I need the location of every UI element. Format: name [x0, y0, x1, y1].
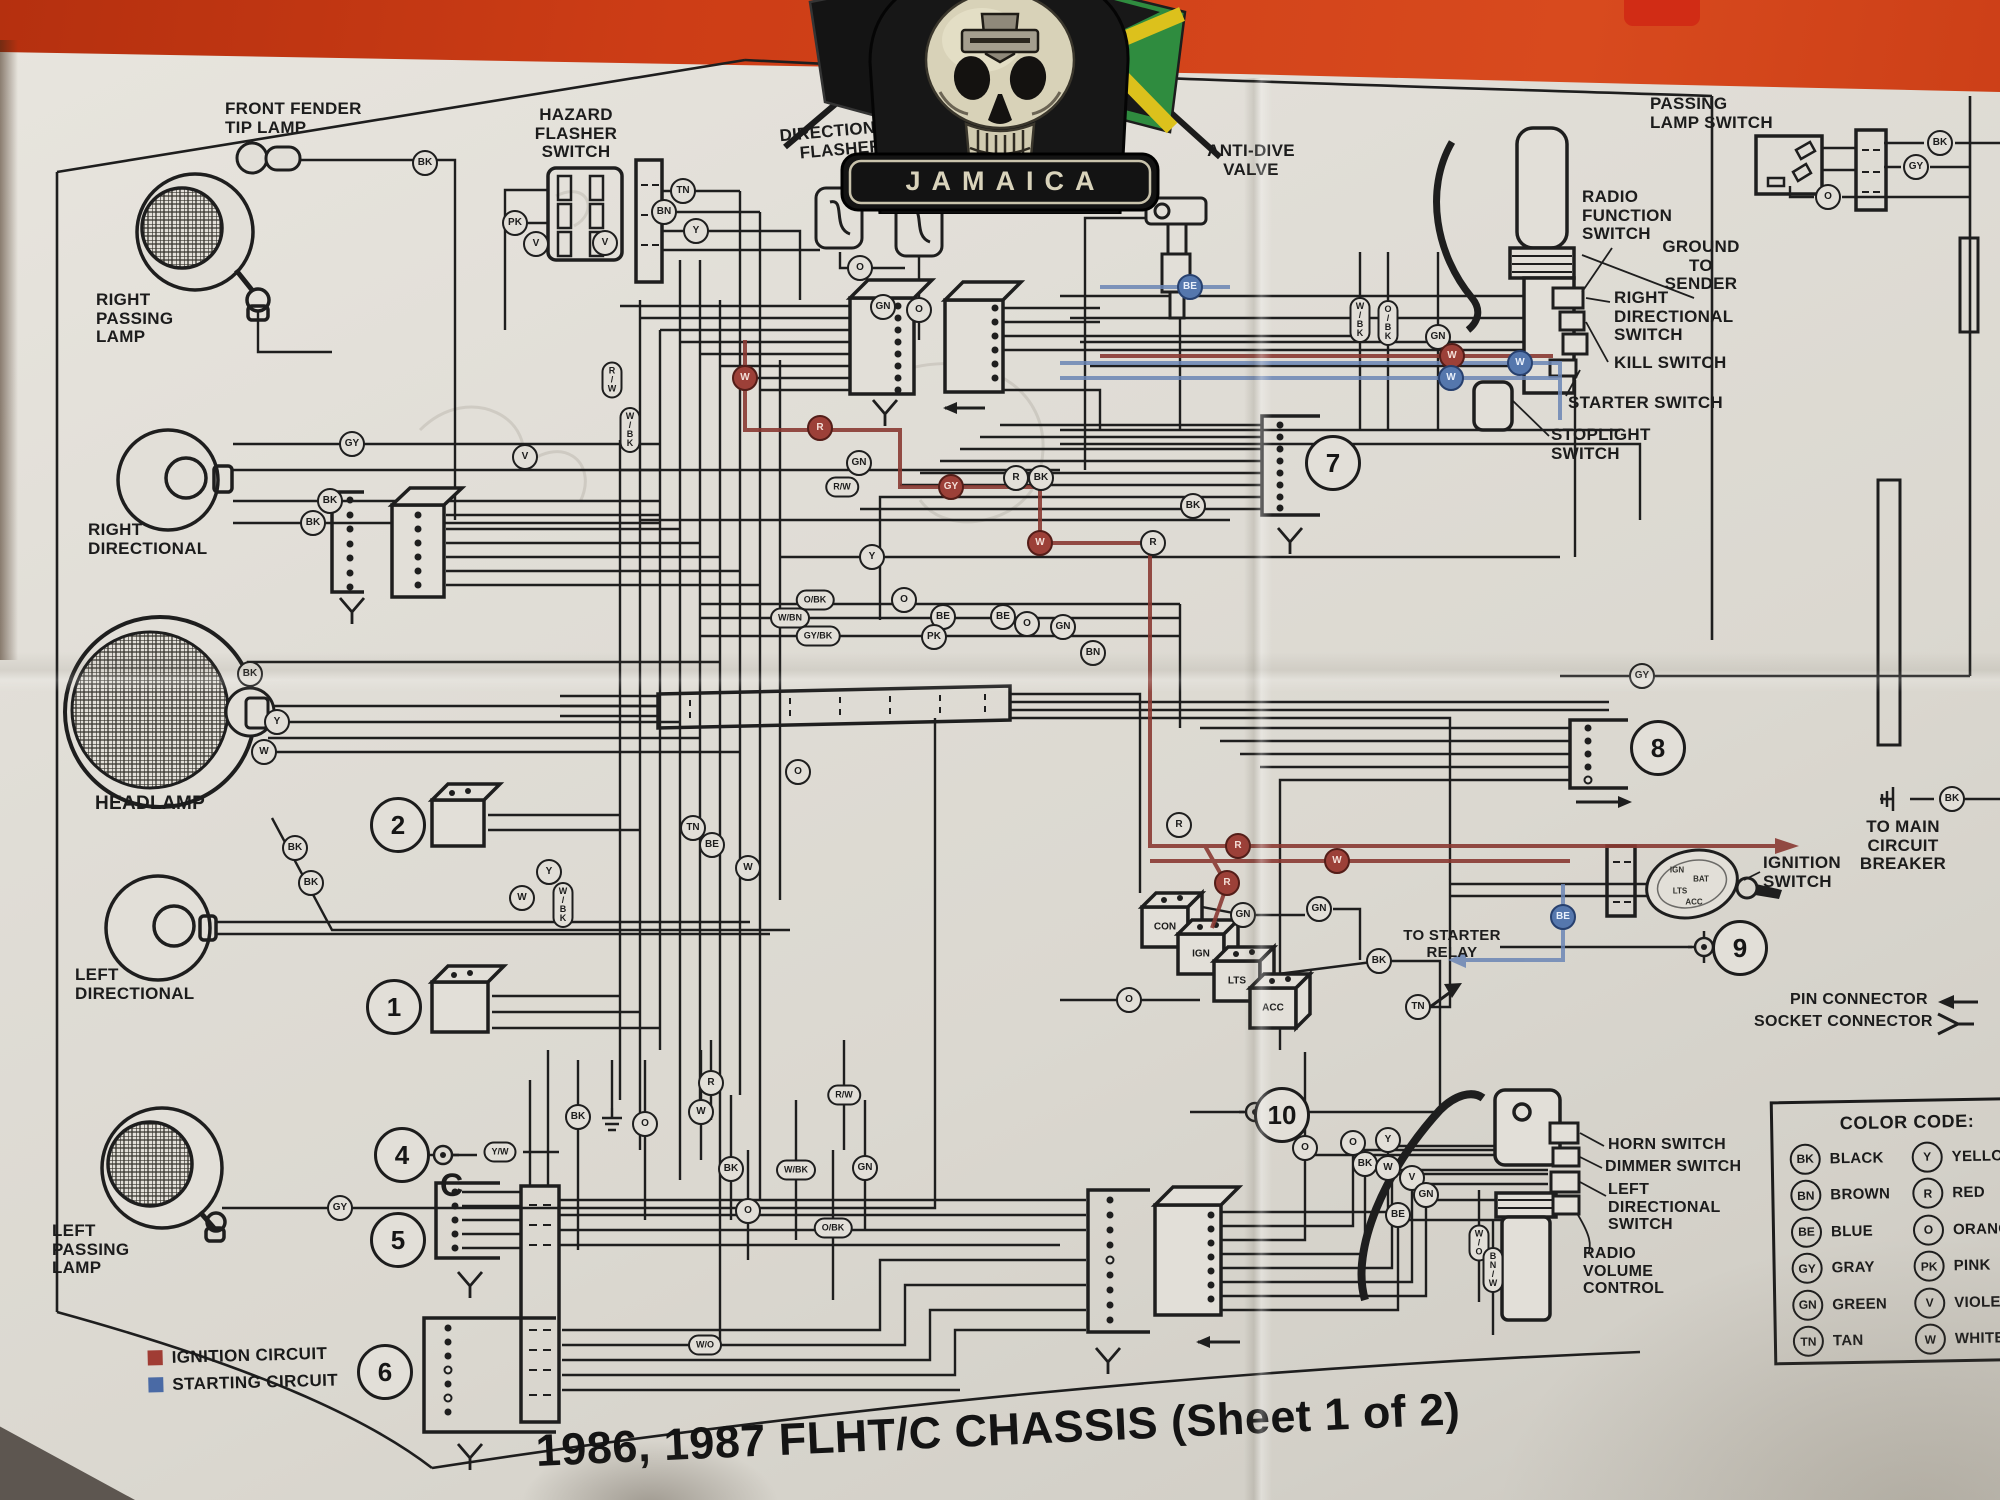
headlamp-label: HEADLAMP — [95, 794, 205, 815]
wire-label-wbk: W/BK — [776, 1160, 816, 1181]
wire-label-gn: GN — [846, 450, 872, 476]
wire-label-r: R — [1003, 465, 1029, 491]
ignition-terminal-lts: LTS — [1673, 887, 1688, 896]
wire-label-gn: GN — [1050, 614, 1076, 640]
wire-label-bk: BK — [298, 870, 324, 896]
wire-label-o: O — [1815, 184, 1841, 210]
wire-label-o: O — [847, 255, 873, 281]
circled-connector-number-1: 1 — [366, 979, 422, 1035]
color-code-name: GRAY — [1831, 1259, 1874, 1277]
color-code-name: ORANGE — [1953, 1220, 2000, 1238]
color-code-abbr: BE — [1791, 1216, 1823, 1248]
color-code-row: VVIOLET — [1914, 1283, 2000, 1322]
legend-item: STARTING CIRCUIT — [148, 1367, 338, 1399]
color-code-row: GNGREEN — [1792, 1285, 1915, 1324]
wire-label-tn: TN — [670, 178, 696, 204]
color-code-row: GYGRAY — [1791, 1248, 1914, 1287]
key-switch-cubes — [1142, 893, 1310, 1028]
wire-label-v: V — [592, 230, 618, 256]
wire-label-w: W — [732, 365, 758, 391]
wire-label-o: O — [891, 587, 917, 613]
color-code-abbr: Y — [1911, 1141, 1943, 1173]
color-code-right-column: YYELLOWRREDOORANGEPKPINKVVIOLETWWHITE — [1911, 1137, 2000, 1358]
wire-label-bk: BK — [1352, 1151, 1378, 1177]
color-code-abbr: PK — [1913, 1251, 1945, 1283]
color-code-row: BNBROWN — [1790, 1175, 1913, 1214]
color-code-name: TAN — [1833, 1332, 1864, 1350]
wire-label-bk: BK — [565, 1104, 591, 1130]
circled-connector-number-10: 10 — [1254, 1087, 1310, 1143]
wire-label-tn: TN — [1405, 994, 1431, 1020]
wire-label-bk: BK — [1927, 130, 1953, 156]
circled-connector-number-9: 9 — [1712, 920, 1768, 976]
color-code-abbr: BN — [1790, 1180, 1822, 1212]
legend-label: STARTING CIRCUIT — [172, 1370, 338, 1394]
color-code-row: BEBLUE — [1791, 1212, 1914, 1251]
color-code-name: RED — [1952, 1184, 1985, 1202]
socket-connector-label: SOCKET CONNECTOR — [1754, 1013, 1933, 1031]
color-code-title: COLOR CODE: — [1773, 1110, 2000, 1136]
lamp-bus-connectors — [332, 488, 462, 597]
dimmer-switch-label: DIMMER SWITCH — [1605, 1158, 1741, 1176]
ignition-terminal-ign: IGN — [1670, 866, 1684, 875]
to-starter-relay-label: TO STARTER RELAY — [1403, 928, 1500, 961]
radio-volume-control-label: RADIO VOLUME CONTROL — [1583, 1245, 1664, 1298]
wire-label-w: W — [251, 739, 277, 765]
circled-connector-number-5: 5 — [370, 1212, 426, 1268]
connector-1-cube — [432, 966, 660, 1032]
color-code-left-column: BKBLACKBNBROWNBEBLUEGYGRAYGNGREENTNTAN — [1789, 1139, 1915, 1360]
wire-label-gn: GN — [1306, 896, 1332, 922]
left-passing-lamp-label: LEFT PASSING LAMP — [52, 1222, 129, 1278]
wire-label-w: W — [688, 1099, 714, 1125]
color-code-row: YYELLOW — [1911, 1137, 2000, 1176]
color-code-abbr: GY — [1791, 1253, 1823, 1285]
wire-label-wbk: W / B K — [620, 407, 641, 453]
wire-label-be: BE — [1385, 1202, 1411, 1228]
patch-banner-text: JAMAICA — [842, 166, 1158, 197]
color-code-row: BKBLACK — [1789, 1139, 1912, 1178]
ignition-terminal-acc: ACC — [1685, 898, 1702, 907]
legend-swatch — [147, 1350, 162, 1365]
color-code-abbr: O — [1913, 1214, 1945, 1246]
color-code-name: GREEN — [1832, 1295, 1887, 1313]
wire-label-rw: R / W — [602, 362, 623, 399]
circled-connector-number-4: 4 — [374, 1127, 430, 1183]
wire-label-rw: R/W — [825, 477, 859, 498]
hazard-flasher-switch-label: HAZARD FLASHER SWITCH — [535, 106, 617, 162]
ignition-switch-label: IGNITION SWITCH — [1763, 854, 1841, 891]
starter-relay-arrow — [1430, 983, 1462, 1007]
anti-dive-valve-drawing — [1146, 198, 1206, 318]
wire-label-o: O — [1116, 987, 1142, 1013]
wire-label-y: Y — [536, 859, 562, 885]
wire-label-be: BE — [699, 832, 725, 858]
color-code-row: TNTAN — [1793, 1321, 1916, 1360]
right-directional-drawing — [118, 430, 232, 530]
wire-label-w: W — [1027, 530, 1053, 556]
circuit-legend: IGNITION CIRCUITSTARTING CIRCUIT — [147, 1340, 338, 1399]
pin-connector-label: PIN CONNECTOR — [1790, 991, 1928, 1009]
wire-label-obk: O/BK — [814, 1218, 853, 1239]
wire-label-bk: BK — [317, 488, 343, 514]
wiring-artwork — [0, 0, 2000, 1500]
wire-label-w: W — [1507, 350, 1533, 376]
wire-label-w: W — [735, 855, 761, 881]
wire-label-gybk: GY/BK — [796, 626, 841, 647]
wire-label-o: O — [632, 1111, 658, 1137]
key-switch-terminal-ign: IGN — [1192, 949, 1210, 960]
color-code-name: BLUE — [1831, 1222, 1873, 1240]
connector-6 — [424, 1318, 556, 1432]
kill-switch-label: KILL SWITCH — [1614, 354, 1727, 373]
circled-connector-number-6: 6 — [357, 1344, 413, 1400]
color-code-row: PKPINK — [1913, 1246, 2000, 1285]
wire-label-gy: GY — [1903, 154, 1929, 180]
ignition-terminal-bat: BAT — [1693, 875, 1709, 884]
wire-label-yw: Y/W — [484, 1142, 517, 1163]
color-code-row: WWHITE — [1915, 1319, 2000, 1358]
wire-label-wo: W/O — [688, 1335, 722, 1356]
wire-label-y: Y — [859, 544, 885, 570]
wire-label-wbk: W / B K — [553, 882, 574, 928]
wire-label-bk: BK — [412, 150, 438, 176]
legend-swatch — [148, 1377, 163, 1392]
wire-label-y: Y — [1375, 1127, 1401, 1153]
wire-label-bk: BK — [1180, 493, 1206, 519]
wire-label-gn: GN — [1230, 902, 1256, 928]
circled-connector-number-7: 7 — [1305, 435, 1361, 491]
center-connector-bar — [658, 686, 1010, 728]
ignition-switch-drawing — [1639, 841, 1782, 927]
key-switch-terminal-lts: LTS — [1228, 976, 1246, 987]
wire-label-gy: GY — [938, 474, 964, 500]
right-passing-lamp-label: RIGHT PASSING LAMP — [96, 291, 173, 347]
wire-label-bk: BK — [282, 835, 308, 861]
right-directional-label: RIGHT DIRECTIONAL — [88, 521, 207, 558]
wire-label-pk: PK — [921, 624, 947, 650]
wire-label-gy: GY — [339, 431, 365, 457]
wire-label-v: V — [512, 444, 538, 470]
color-code-name: WHITE — [1955, 1330, 2000, 1348]
wire-label-bn: BN — [651, 199, 677, 225]
wire-label-w: W — [509, 885, 535, 911]
wire-label-obk: O / B K — [1378, 300, 1399, 346]
color-code-box: COLOR CODE: BKBLACKBNBROWNBEBLUEGYGRAYGN… — [1770, 1097, 2000, 1366]
wire-label-bk: BK — [237, 661, 263, 687]
left-directional-label: LEFT DIRECTIONAL — [75, 966, 194, 1003]
wire-label-o: O — [785, 759, 811, 785]
headlamp-drawing — [65, 617, 274, 807]
circled-connector-number-8: 8 — [1630, 720, 1686, 776]
wire-label-r: R — [1140, 530, 1166, 556]
right-side-bars — [1878, 238, 1978, 745]
to-main-circuit-breaker-label: TO MAIN CIRCUIT BREAKER — [1855, 818, 1952, 874]
color-code-abbr: TN — [1793, 1326, 1825, 1358]
wire-label-bk: BK — [1028, 465, 1054, 491]
stoplight-switch-label: STOPLIGHT SWITCH — [1551, 426, 1651, 463]
pin-connector-symbol — [1938, 995, 1978, 1009]
starter-switch-label: STARTER SWITCH — [1568, 394, 1723, 413]
legend-label: IGNITION CIRCUIT — [171, 1343, 327, 1367]
wire-label-o: O — [906, 297, 932, 323]
wire-label-be: BE — [1550, 904, 1576, 930]
color-code-abbr: W — [1915, 1324, 1947, 1356]
wire-label-v: V — [523, 231, 549, 257]
color-code-name: BROWN — [1830, 1186, 1890, 1204]
wire-label-gn: GN — [852, 1155, 878, 1181]
color-code-row: OORANGE — [1913, 1210, 2000, 1249]
c-marker: C — [440, 1168, 463, 1203]
wire-label-bk: BK — [1366, 948, 1392, 974]
front-fender-tip-lamp-label: FRONT FENDER TIP LAMP — [225, 100, 362, 137]
horn-switch-label: HORN SWITCH — [1608, 1136, 1726, 1154]
wire-label-bk: BK — [718, 1156, 744, 1182]
color-code-name: VIOLET — [1954, 1293, 2000, 1311]
wire-label-wbk: W / B K — [1350, 297, 1371, 343]
color-code-row: RRED — [1912, 1173, 2000, 1212]
circled-connector-number-2: 2 — [370, 797, 426, 853]
photo-of-wiring-diagram: FRONT FENDER TIP LAMPHAZARD FLASHER SWIT… — [0, 0, 2000, 1500]
wire-label-bk: BK — [1939, 786, 1965, 812]
color-code-abbr: V — [1914, 1287, 1946, 1319]
wire-label-y: Y — [683, 218, 709, 244]
color-code-name: YELLOW — [1952, 1147, 2000, 1165]
hazard-flasher-switch-drawing — [548, 160, 662, 282]
key-switch-terminal-con: CON — [1154, 922, 1176, 933]
wire-label-be: BE — [1177, 274, 1203, 300]
wire-label-gy: GY — [327, 1195, 353, 1221]
wire-label-r: R — [1166, 812, 1192, 838]
wire-label-w: W — [1375, 1155, 1401, 1181]
wire-label-r: R — [698, 1070, 724, 1096]
wire-label-o: O — [735, 1198, 761, 1224]
wire-label-o: O — [1014, 611, 1040, 637]
wire-label-w: W — [1438, 365, 1464, 391]
color-code-name: BLACK — [1830, 1149, 1884, 1167]
color-code-abbr: GN — [1792, 1289, 1824, 1321]
wire-label-rw: R/W — [827, 1085, 861, 1106]
bottom-connector-strip — [521, 1186, 559, 1422]
wire-label-r: R — [1225, 833, 1251, 859]
radio-function-switch-label: RADIO FUNCTION SWITCH — [1582, 188, 1672, 244]
wire-label-y: Y — [264, 709, 290, 735]
wire-label-bk: BK — [300, 510, 326, 536]
connector-8 — [1570, 720, 1632, 808]
wire-label-w: W — [1324, 848, 1350, 874]
wire-label-pk: PK — [502, 210, 528, 236]
color-code-name: PINK — [1953, 1257, 1990, 1275]
color-code-abbr: R — [1912, 1178, 1944, 1210]
wire-label-gy: GY — [1629, 663, 1655, 689]
socket-connector-symbol — [1938, 1014, 1974, 1034]
ground-to-sender-label: GROUND TO SENDER — [1662, 238, 1739, 294]
wire-label-gn: GN — [870, 294, 896, 320]
key-switch-terminal-acc: ACC — [1262, 1003, 1284, 1014]
wire-label-bnw: B N / W — [1483, 1247, 1504, 1293]
color-code-abbr: BK — [1789, 1143, 1821, 1175]
jamaica-skull-patch: JAMAICA — [730, 0, 1270, 214]
wire-label-r: R — [807, 415, 833, 441]
wire-label-be: BE — [990, 604, 1016, 630]
passing-lamp-switch-label: PASSING LAMP SWITCH — [1650, 95, 1773, 132]
ignition-connector-bar — [1607, 846, 1635, 916]
wire-label-bn: BN — [1080, 640, 1106, 666]
front-fender-tip-lamp-drawing — [237, 143, 300, 173]
connector-2-cube — [432, 784, 640, 846]
bottom-center-connectors — [1088, 1187, 1240, 1348]
right-directional-switch-label: RIGHT DIRECTIONAL SWITCH — [1614, 289, 1733, 345]
left-directional-switch-label: LEFT DIRECTIONAL SWITCH — [1608, 1181, 1721, 1234]
left-directional-drawing — [106, 876, 216, 980]
wire-label-r: R — [1214, 870, 1240, 896]
wire-label-gn: GN — [1413, 1182, 1439, 1208]
